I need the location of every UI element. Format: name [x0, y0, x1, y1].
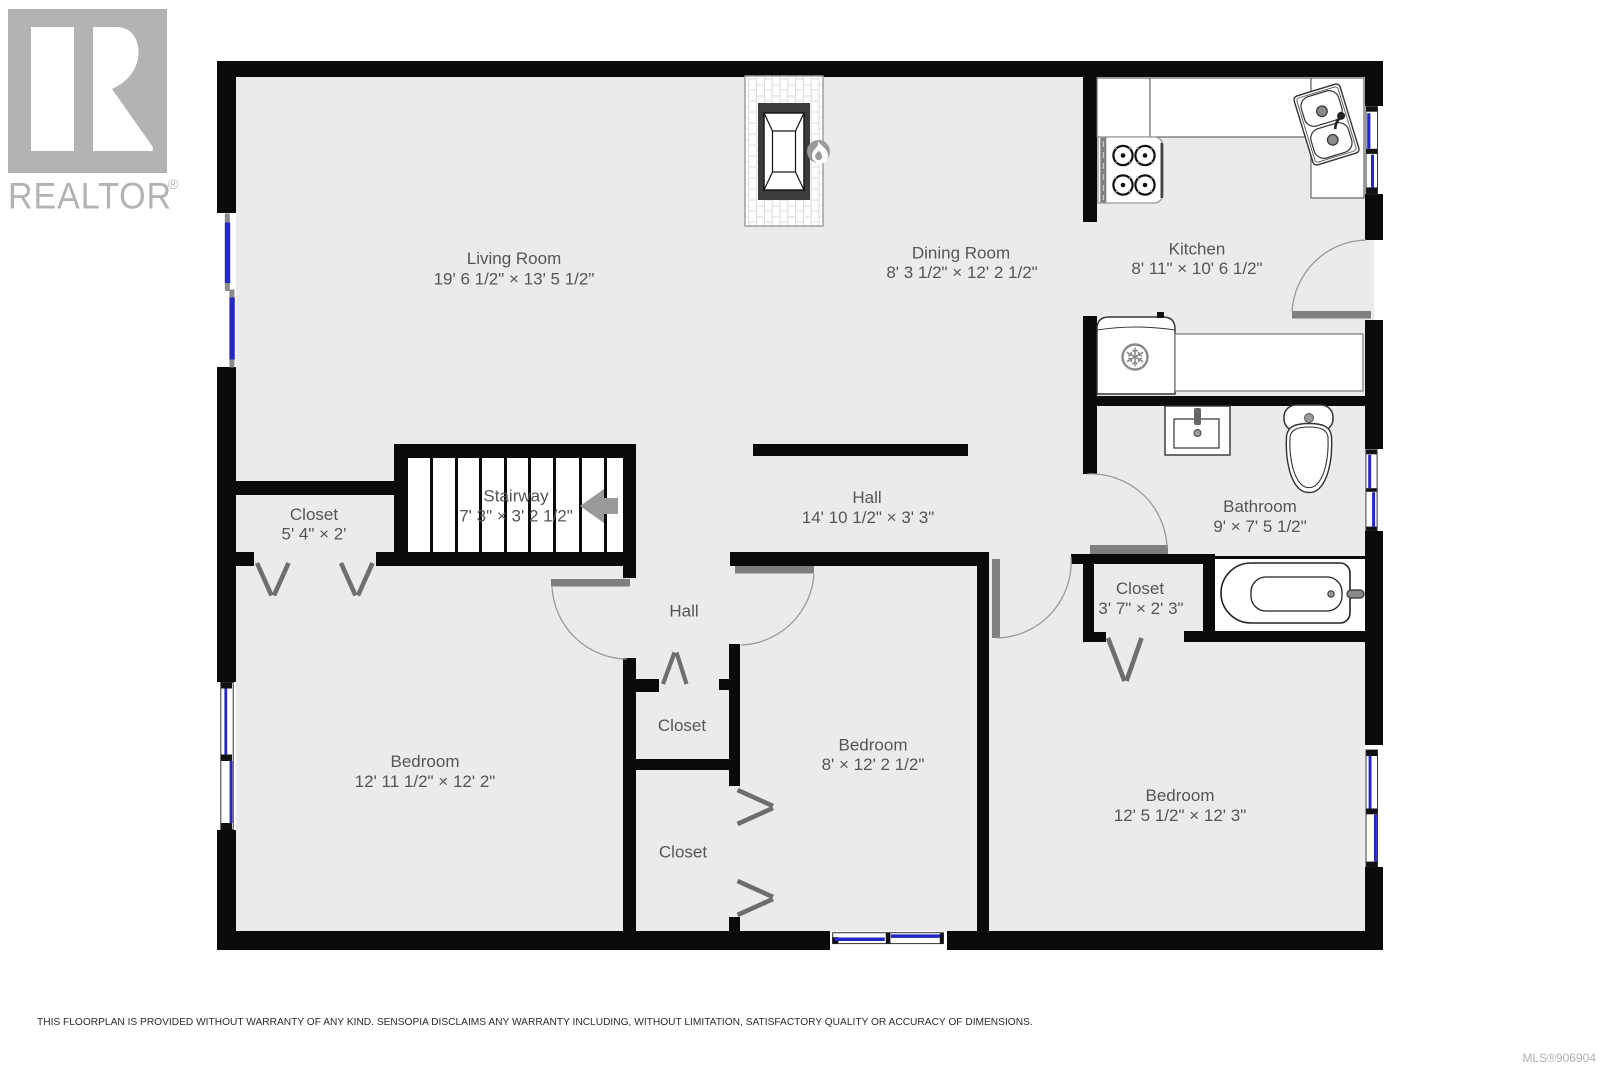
svg-text:Stairway: Stairway: [483, 487, 549, 506]
svg-text:®: ®: [168, 176, 179, 192]
svg-text:Bathroom: Bathroom: [1223, 497, 1297, 516]
svg-text:3' 7" × 2' 3": 3' 7" × 2' 3": [1098, 599, 1183, 618]
svg-text:MLS®906904: MLS®906904: [1522, 1051, 1596, 1065]
svg-text:Living Room: Living Room: [467, 249, 562, 268]
svg-text:Dining Room: Dining Room: [912, 244, 1010, 263]
svg-text:Closet: Closet: [1116, 579, 1164, 598]
svg-text:REALTOR: REALTOR: [8, 175, 172, 217]
svg-text:Bedroom: Bedroom: [1146, 786, 1215, 805]
svg-text:5' 4" × 2': 5' 4" × 2': [282, 525, 347, 544]
svg-text:7' 3" × 3' 2 1/2": 7' 3" × 3' 2 1/2": [459, 507, 573, 526]
svg-text:12' 5 1/2" × 12' 3": 12' 5 1/2" × 12' 3": [1114, 806, 1246, 825]
svg-text:Hall: Hall: [669, 602, 698, 621]
svg-text:Hall: Hall: [852, 488, 881, 507]
svg-text:8' 3 1/2" × 12' 2 1/2": 8' 3 1/2" × 12' 2 1/2": [886, 263, 1037, 282]
svg-text:Kitchen: Kitchen: [1169, 240, 1226, 259]
svg-text:8' 11" × 10' 6 1/2": 8' 11" × 10' 6 1/2": [1131, 259, 1262, 278]
svg-text:9' × 7' 5 1/2": 9' × 7' 5 1/2": [1213, 517, 1306, 536]
svg-text:THIS FLOORPLAN IS PROVIDED WIT: THIS FLOORPLAN IS PROVIDED WITHOUT WARRA…: [37, 1017, 1033, 1028]
svg-text:Closet: Closet: [290, 505, 338, 524]
svg-text:Closet: Closet: [659, 843, 707, 862]
svg-text:19' 6 1/2" × 13' 5 1/2": 19' 6 1/2" × 13' 5 1/2": [434, 270, 595, 289]
svg-text:Bedroom: Bedroom: [839, 736, 908, 755]
svg-text:8' × 12' 2 1/2": 8' × 12' 2 1/2": [822, 755, 925, 774]
svg-text:12' 11 1/2" × 12' 2": 12' 11 1/2" × 12' 2": [355, 772, 496, 791]
svg-text:Bedroom: Bedroom: [391, 752, 460, 771]
svg-text:Closet: Closet: [658, 716, 706, 735]
svg-text:14' 10 1/2" × 3' 3": 14' 10 1/2" × 3' 3": [802, 508, 934, 527]
